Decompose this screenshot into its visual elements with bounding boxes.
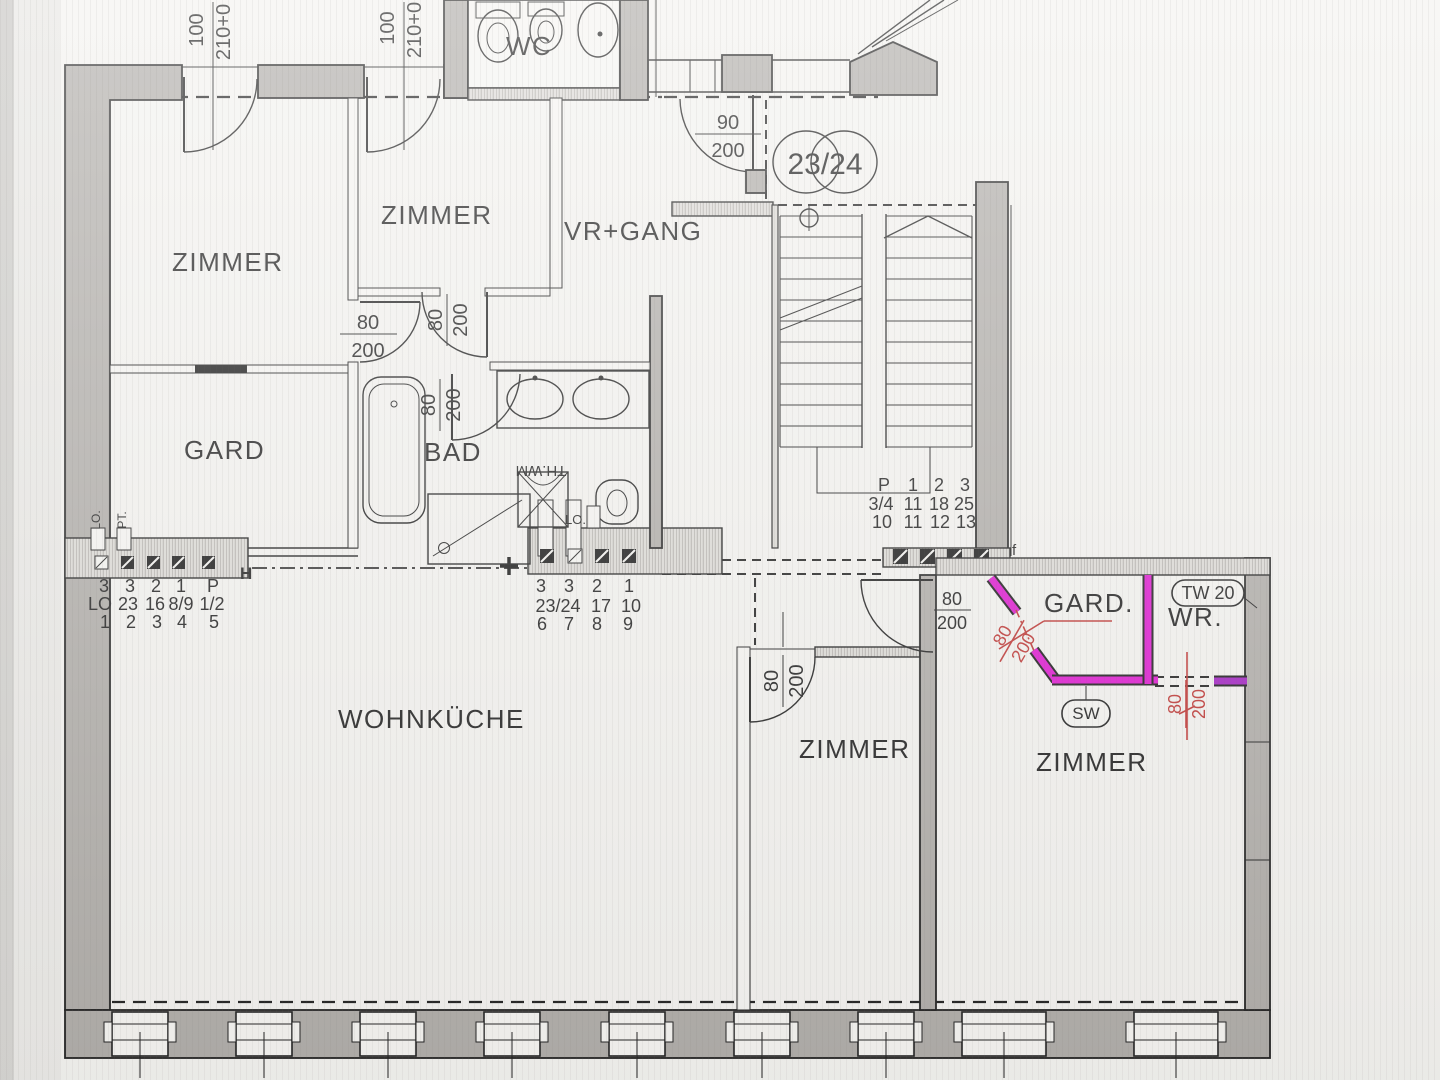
svg-text:4: 4	[177, 612, 187, 632]
facade-pilaster	[722, 55, 772, 92]
svg-text:23: 23	[118, 594, 138, 614]
tw20-label: TW 20	[1181, 583, 1234, 603]
door-dim-middle-room: 100 210+0	[377, 2, 426, 150]
svg-text:3: 3	[152, 612, 162, 632]
svg-text:6: 6	[537, 614, 547, 634]
svg-text:P: P	[207, 576, 219, 596]
svg-text:80: 80	[357, 312, 379, 334]
svg-text:16: 16	[145, 594, 165, 614]
svg-text:200: 200	[711, 140, 744, 162]
svg-text:3: 3	[125, 576, 135, 596]
svg-text:100: 100	[377, 11, 399, 44]
bathtub	[363, 377, 425, 523]
svg-text:210+0: 210+0	[404, 2, 426, 58]
window	[726, 1012, 798, 1078]
stair-direction-arrow	[884, 216, 972, 238]
floor-plan-drawing: 23/24 TW 20 SW ZIMMER ZIMMER VR+GANG GAR…	[0, 0, 1440, 1080]
room-label-gard: GARD	[184, 435, 265, 465]
svg-text:13: 13	[956, 512, 976, 532]
th-wm-label: TH.WM	[516, 462, 567, 479]
survey-cross	[500, 557, 518, 575]
window	[352, 1012, 424, 1078]
shaft-table-middle: 3 3 2 1 23/24 17 10 6 7 8 9	[535, 576, 641, 634]
bad-toilet	[596, 480, 638, 524]
svg-text:3: 3	[536, 576, 546, 596]
svg-text:11: 11	[904, 512, 923, 532]
svg-text:11: 11	[904, 494, 923, 514]
sw-badge: SW	[1062, 700, 1110, 727]
corridor-south-wall-middle	[500, 500, 722, 575]
svg-text:1/2: 1/2	[199, 594, 224, 614]
mid-room-walls	[737, 575, 936, 1010]
interior-walls	[110, 98, 662, 548]
shaft-lo	[91, 528, 105, 550]
lo-shaft-label: LO.	[89, 510, 103, 529]
window	[601, 1012, 673, 1078]
door-dim-right-apartment: 80 200	[934, 589, 971, 633]
svg-text:200: 200	[351, 340, 384, 362]
svg-text:1: 1	[908, 475, 918, 495]
wall-left-rooms-lower	[348, 362, 358, 548]
window	[1126, 1012, 1226, 1078]
stair-break-line	[780, 298, 862, 330]
svg-text:80: 80	[942, 589, 962, 609]
apartment-number-badge: 23/24	[773, 131, 877, 193]
wall-bad-east	[650, 296, 662, 548]
window	[476, 1012, 548, 1078]
svg-text:7: 7	[564, 614, 574, 634]
lo-bad-label: LO.	[565, 512, 586, 527]
room-label-zimmer-top: ZIMMER	[381, 200, 493, 230]
svg-text:3: 3	[564, 576, 574, 596]
svg-text:2: 2	[934, 475, 944, 495]
h-mark: H	[240, 564, 252, 583]
stair-stringer	[862, 214, 886, 448]
stair-break-line	[780, 286, 862, 318]
room-label-wohnkueche: WOHNKÜCHE	[338, 704, 525, 734]
wall-zimmer-top-bottom-b	[485, 288, 550, 296]
lo-duct-bad	[587, 506, 600, 528]
room-label-zimmer-mid: ZIMMER	[799, 734, 911, 764]
svg-text:200: 200	[450, 303, 472, 336]
vestibule-wall	[672, 202, 773, 216]
window	[228, 1012, 300, 1078]
apartment-number: 23/24	[787, 148, 862, 181]
stair-count-table: P 1 2 3 3/4 11 18 25 10 11 12 13	[868, 475, 976, 532]
shower-tray	[428, 494, 530, 564]
svg-text:17: 17	[591, 596, 611, 616]
svg-text:80: 80	[418, 394, 440, 416]
svg-text:200: 200	[937, 613, 967, 633]
svg-text:23/24: 23/24	[535, 596, 580, 616]
door-dim-upper-room: 80 200	[425, 294, 472, 346]
facade-top-right	[648, 0, 958, 95]
svg-text:2: 2	[151, 576, 161, 596]
mid-room-north-wall	[815, 647, 920, 657]
svg-text:80: 80	[1165, 694, 1185, 714]
svg-text:8/9: 8/9	[168, 594, 193, 614]
svg-text:10: 10	[621, 596, 641, 616]
svg-text:3/4: 3/4	[868, 494, 893, 514]
apartment-divider-wall	[920, 575, 936, 1010]
room-label-wc: WC	[506, 31, 552, 61]
wall-bad-north	[490, 362, 650, 370]
svg-text:100: 100	[186, 13, 208, 46]
room-label-bad: BAD	[424, 437, 482, 467]
svg-text:9: 9	[623, 614, 633, 634]
svg-text:80: 80	[425, 309, 447, 331]
svg-text:1: 1	[176, 576, 186, 596]
svg-text:25: 25	[954, 494, 974, 514]
svg-text:LO: LO	[88, 594, 112, 614]
room-label-vr-gang: VR+GANG	[564, 216, 702, 246]
shaft-pt	[117, 528, 131, 550]
wall-vent-segment	[195, 365, 247, 373]
stair-left-wall	[772, 205, 778, 548]
shaft-table-left: 3 3 2 1 P LO 23 16 8/9 1/2 1 2 3 4 5	[88, 576, 225, 632]
room-label-zimmer-right: ZIMMER	[1036, 747, 1148, 777]
svg-text:1: 1	[624, 576, 634, 596]
svg-text:90: 90	[717, 112, 739, 134]
door-dim-gard-right: 80 200	[982, 610, 1044, 674]
door-left-room	[184, 77, 257, 152]
window	[104, 1012, 176, 1078]
window	[850, 1012, 922, 1078]
svg-text:P: P	[878, 475, 890, 495]
svg-text:12: 12	[930, 512, 950, 532]
window	[954, 1012, 1054, 1078]
mid-room-west-wall	[737, 647, 750, 1010]
svg-text:200: 200	[786, 664, 808, 697]
svg-text:80: 80	[761, 670, 783, 692]
svg-text:3: 3	[99, 576, 109, 596]
wc-right-wall	[620, 0, 648, 100]
stair-right-wall	[976, 182, 1008, 555]
right-apartment-north-wall	[936, 558, 1270, 575]
f-mark: f	[1012, 542, 1017, 559]
wall-left-rooms-upper	[348, 98, 358, 300]
wall-zimmer-top-bottom-a	[358, 288, 440, 296]
room-label-zimmer-left: ZIMMER	[172, 247, 284, 277]
svg-text:200: 200	[443, 388, 465, 421]
sw-label: SW	[1072, 704, 1099, 723]
room-label-wr: WR.	[1168, 602, 1223, 632]
door-dim-entrance: 90 200	[695, 112, 761, 162]
svg-text:3: 3	[960, 475, 970, 495]
svg-text:2: 2	[126, 612, 136, 632]
door-dim-left-room: 100 210+0	[186, 2, 235, 150]
svg-text:210+0: 210+0	[213, 4, 235, 60]
floor-plan-scan: 23/24 TW 20 SW ZIMMER ZIMMER VR+GANG GAR…	[0, 0, 1440, 1080]
svg-text:8: 8	[592, 614, 602, 634]
top-wall-segment	[258, 65, 364, 98]
right-outer-wall	[1245, 558, 1270, 1010]
svg-text:5: 5	[209, 612, 219, 632]
svg-text:200: 200	[1189, 689, 1209, 719]
pt-shaft-label: PT.	[115, 511, 129, 528]
door-dim-mid-room: 80 200	[761, 655, 808, 707]
wall-corridor-west	[550, 98, 562, 288]
svg-text:2: 2	[592, 576, 602, 596]
room-label-gard-right: GARD.	[1044, 588, 1134, 618]
svg-text:18: 18	[929, 494, 949, 514]
svg-text:1: 1	[100, 612, 110, 632]
svg-text:10: 10	[872, 512, 892, 532]
